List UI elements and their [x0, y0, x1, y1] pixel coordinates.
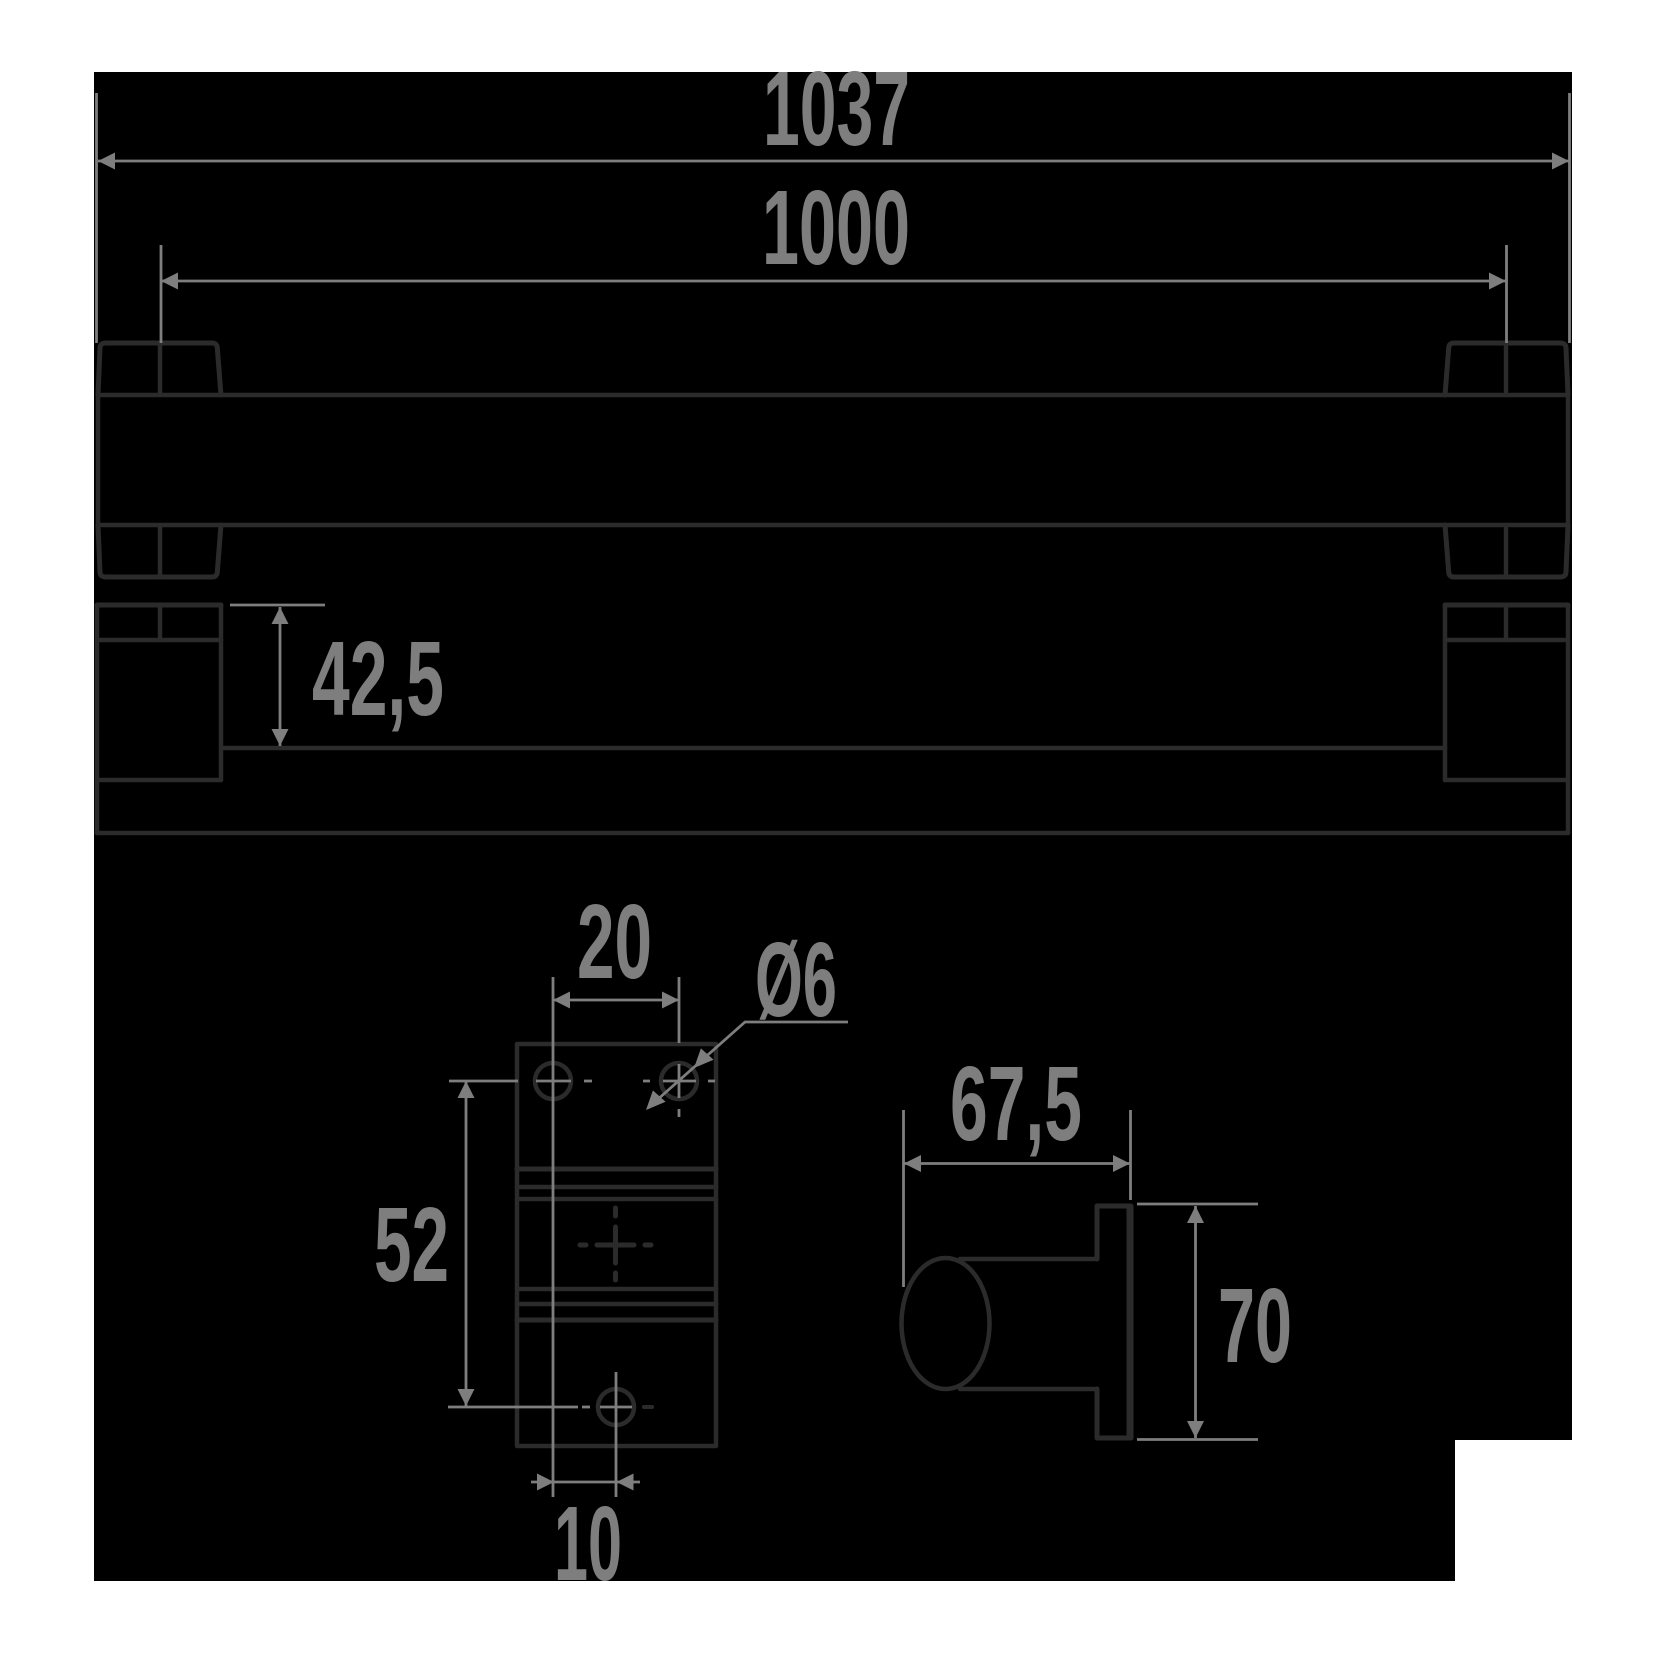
- svg-text:67,5: 67,5: [950, 1045, 1082, 1163]
- svg-text:10: 10: [554, 1485, 622, 1603]
- svg-text:52: 52: [374, 1186, 449, 1304]
- svg-text:42,5: 42,5: [312, 620, 444, 738]
- svg-text:20: 20: [577, 883, 652, 1001]
- svg-text:1000: 1000: [762, 169, 910, 287]
- svg-text:1037: 1037: [763, 50, 910, 168]
- svg-text:Ø6: Ø6: [755, 921, 837, 1039]
- svg-text:70: 70: [1218, 1267, 1292, 1385]
